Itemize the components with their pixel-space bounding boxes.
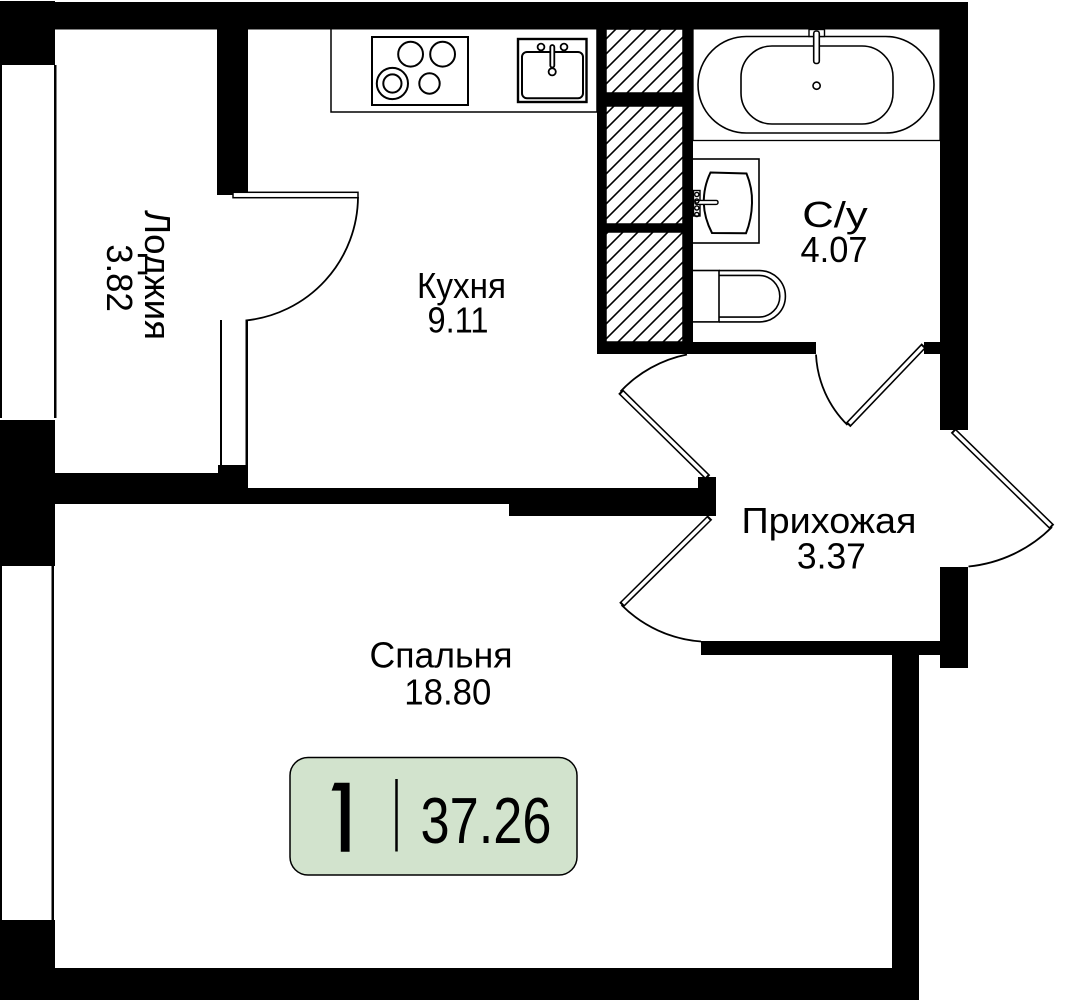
svg-text:37.26: 37.26 bbox=[421, 784, 552, 857]
svg-text:4.07: 4.07 bbox=[801, 229, 868, 270]
svg-text:18.80: 18.80 bbox=[404, 672, 491, 713]
svg-text:3.82: 3.82 bbox=[99, 244, 140, 312]
svg-text:Лоджия: Лоджия bbox=[137, 210, 178, 340]
svg-text:Спальня: Спальня bbox=[370, 635, 513, 676]
svg-text:9.11: 9.11 bbox=[428, 300, 489, 341]
svg-text:3.37: 3.37 bbox=[797, 536, 866, 577]
